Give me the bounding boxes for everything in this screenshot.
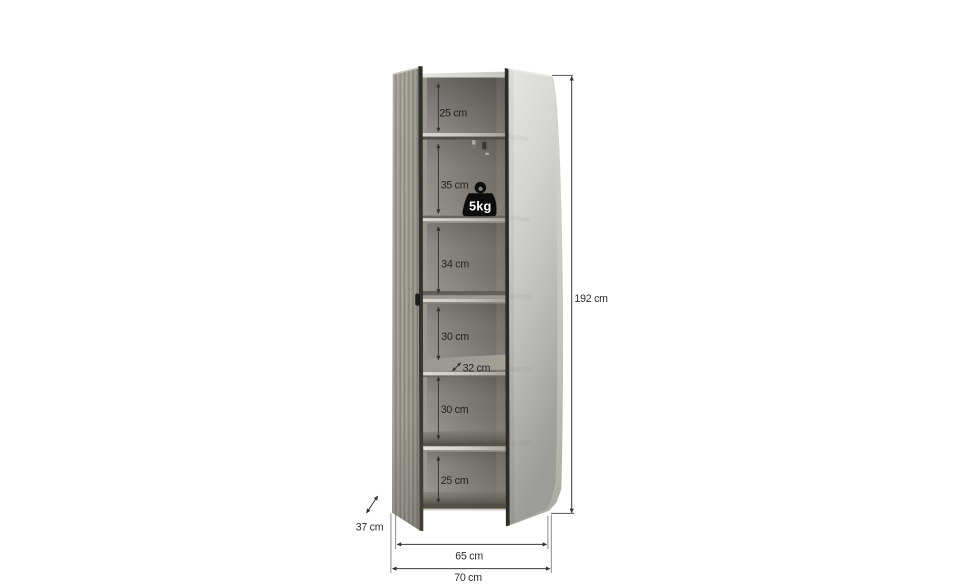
svg-text:25 cm: 25 cm (439, 107, 467, 119)
svg-text:5kg: 5kg (469, 199, 491, 214)
svg-text:34 cm: 34 cm (441, 259, 469, 271)
svg-text:25 cm: 25 cm (441, 475, 469, 487)
svg-text:70 cm: 70 cm (454, 572, 482, 584)
svg-text:35 cm: 35 cm (441, 179, 469, 191)
svg-text:192 cm: 192 cm (575, 293, 609, 305)
svg-text:65 cm: 65 cm (455, 551, 483, 563)
svg-text:30 cm: 30 cm (441, 331, 469, 343)
svg-text:32 cm: 32 cm (463, 363, 491, 375)
svg-text:37 cm: 37 cm (356, 521, 384, 533)
svg-text:30 cm: 30 cm (441, 404, 469, 416)
